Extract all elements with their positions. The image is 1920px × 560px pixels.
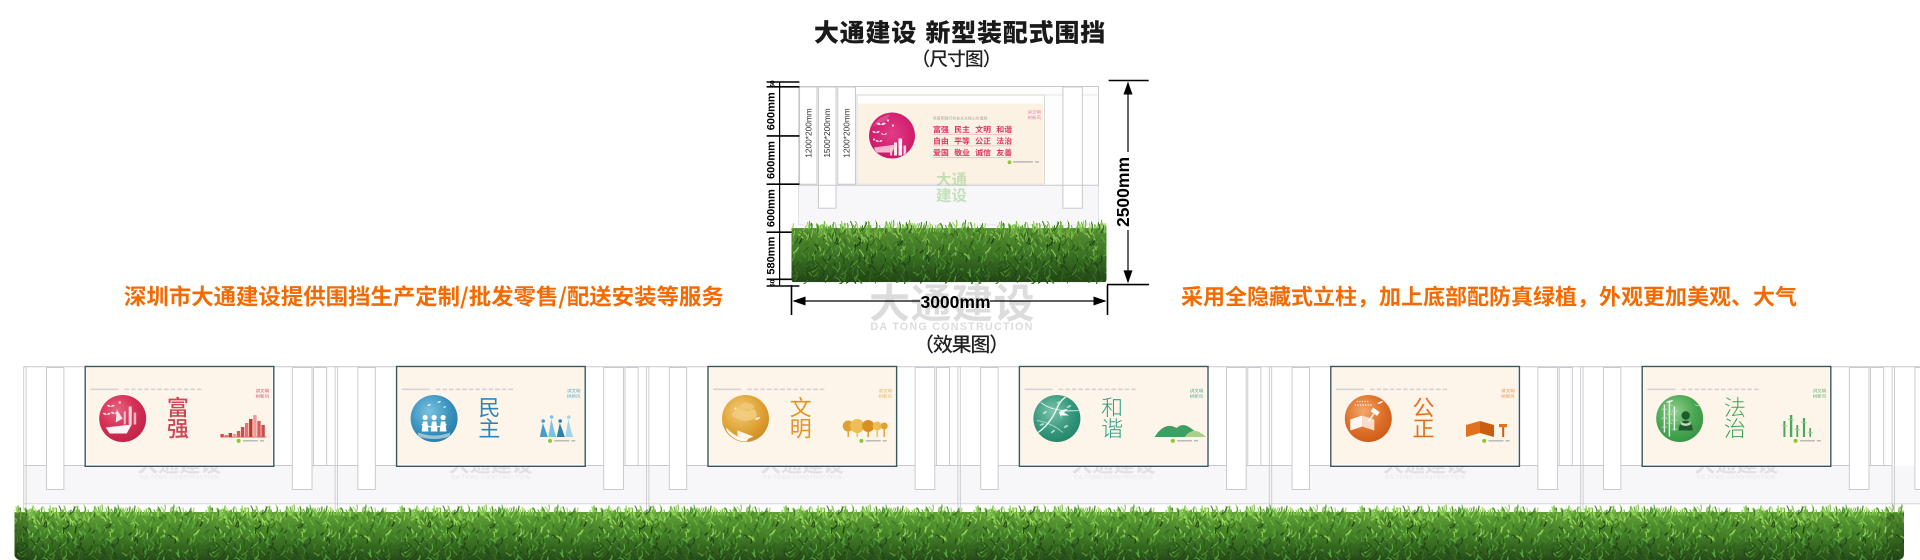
svg-text:600mm: 600mm	[766, 189, 778, 227]
svg-text:580mm: 580mm	[766, 237, 778, 275]
svg-text:2500mm: 2500mm	[1113, 157, 1133, 227]
svg-text:DA TONG CONSTRUCTION: DA TONG CONSTRUCTION	[451, 475, 530, 481]
svg-text:1500*200mm: 1500*200mm	[822, 108, 832, 157]
svg-text:DA TONG CONSTRUCTION: DA TONG CONSTRUCTION	[763, 475, 842, 481]
svg-text:3000mm: 3000mm	[920, 292, 990, 312]
svg-text:DA TONG CONSTRUCTION: DA TONG CONSTRUCTION	[1074, 475, 1153, 481]
svg-text:1200*200mm: 1200*200mm	[803, 108, 813, 157]
svg-text:DA TONG CONSTRUCTION: DA TONG CONSTRUCTION	[1386, 475, 1465, 481]
svg-text:DA TONG CONSTRUCTION: DA TONG CONSTRUCTION	[870, 321, 1033, 333]
svg-text:DA TONG CONSTRUCTION: DA TONG CONSTRUCTION	[1697, 475, 1776, 481]
svg-text:600mm: 600mm	[766, 141, 778, 179]
svg-text:DA TONG CONSTRUCTION: DA TONG CONSTRUCTION	[140, 475, 219, 481]
svg-text:60: 60	[770, 80, 777, 88]
svg-text:600mm: 600mm	[766, 92, 778, 130]
svg-text:60: 60	[770, 279, 777, 287]
svg-text:1200*200mm: 1200*200mm	[842, 108, 852, 157]
